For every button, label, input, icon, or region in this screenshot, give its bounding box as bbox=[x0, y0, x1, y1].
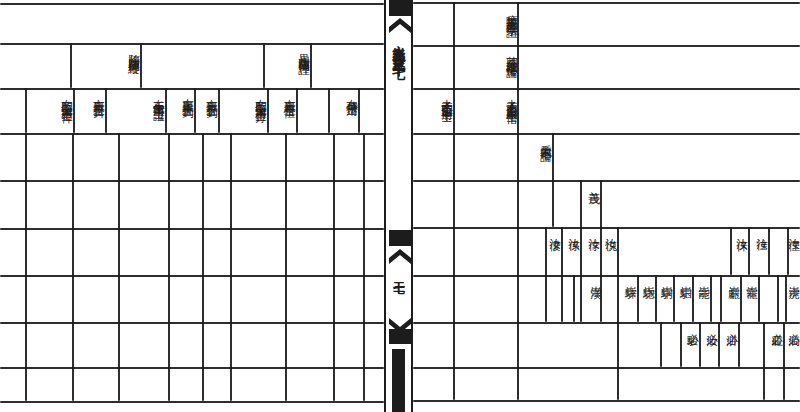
grid-line-horizontal bbox=[413, 2, 800, 4]
genealogy-cell: 英國公諡孝僖仲論 bbox=[454, 47, 518, 88]
genealogy-cell: 廣陵郡王諡莊孝宗諠 bbox=[454, 5, 518, 45]
spine-ink-stripe bbox=[392, 349, 405, 412]
genealogy-cell: 崇能 bbox=[692, 277, 710, 322]
grid-line-vertical bbox=[660, 322, 662, 367]
spine-ornaments bbox=[386, 0, 415, 412]
genealogy-cell: 汝悦 bbox=[600, 229, 617, 275]
grid-line-horizontal bbox=[413, 133, 800, 135]
grid-line-horizontal bbox=[413, 180, 800, 182]
book-spine: 永樂大典卷之萬三千十七 三十七 bbox=[384, 0, 413, 412]
genealogy-cell: 必洴 bbox=[718, 324, 738, 366]
genealogy-cell: 崇馹 bbox=[673, 277, 692, 322]
spine-mid-bar bbox=[389, 230, 411, 246]
grid-line-vertical bbox=[777, 275, 779, 322]
genealogy-cell: 善茂 bbox=[580, 182, 600, 227]
spine-bottom-bar bbox=[389, 329, 411, 344]
grid-line-horizontal bbox=[413, 367, 800, 369]
genealogy-cell: 汝侼 bbox=[580, 229, 600, 275]
genealogy-cell: 崇騋 bbox=[617, 277, 637, 322]
volume-title: 永樂大典卷之萬三千十七 bbox=[390, 34, 408, 58]
folio-number: 三十七 bbox=[391, 272, 406, 275]
genealogy-cell: 崇甗 bbox=[720, 277, 740, 322]
grid-line-vertical bbox=[768, 227, 770, 275]
genealogy-cell: 汝係 bbox=[561, 229, 580, 275]
genealogy-cell: 汝僾 bbox=[545, 229, 561, 275]
grid-line-horizontal bbox=[413, 400, 800, 402]
genealogy-cell: 必靇 bbox=[763, 324, 783, 366]
genealogy-cell: 必汝 bbox=[699, 324, 718, 366]
genealogy-cell: 太子右監門率府率士 bbox=[414, 90, 453, 133]
genealogy-cell: 崇寵 bbox=[740, 277, 758, 322]
genealogy-cell: 必駿 bbox=[680, 324, 699, 366]
book-spread: 隋州防禦使仲縱果州防禦使仲諲右侍禁士煟右班殿直士愃右監門衛大將軍士錞右班殿直士釗… bbox=[0, 0, 800, 412]
genealogy-cell: 崇虎 bbox=[785, 277, 800, 322]
genealogy-cell: 必淌 bbox=[783, 324, 800, 366]
genealogy-cell: 汝侎 bbox=[730, 229, 748, 275]
fishtail-top-icon bbox=[389, 18, 411, 33]
fishtail-mid-icon bbox=[389, 249, 411, 264]
genealogy-cell: 汝徍 bbox=[748, 229, 768, 275]
grid-line-vertical bbox=[710, 275, 712, 322]
genealogy-cell: 秉義郎不論 bbox=[517, 135, 552, 180]
genealogy-cell: 崇騘 bbox=[637, 277, 655, 322]
grid-line-horizontal bbox=[413, 322, 800, 324]
grid-line-vertical bbox=[552, 133, 554, 227]
genealogy-cell: 汝俚 bbox=[787, 229, 800, 275]
grid-line-vertical bbox=[738, 322, 740, 367]
genealogy-cell: 太子右内率府副率士悟 bbox=[454, 90, 518, 133]
genealogy-cell: 崇駉 bbox=[655, 277, 673, 322]
grid-line-vertical bbox=[573, 275, 575, 322]
spine-top-bar bbox=[389, 0, 411, 16]
grid-line-vertical bbox=[758, 275, 760, 322]
genealogy-cell: 崇漢 bbox=[580, 277, 602, 322]
